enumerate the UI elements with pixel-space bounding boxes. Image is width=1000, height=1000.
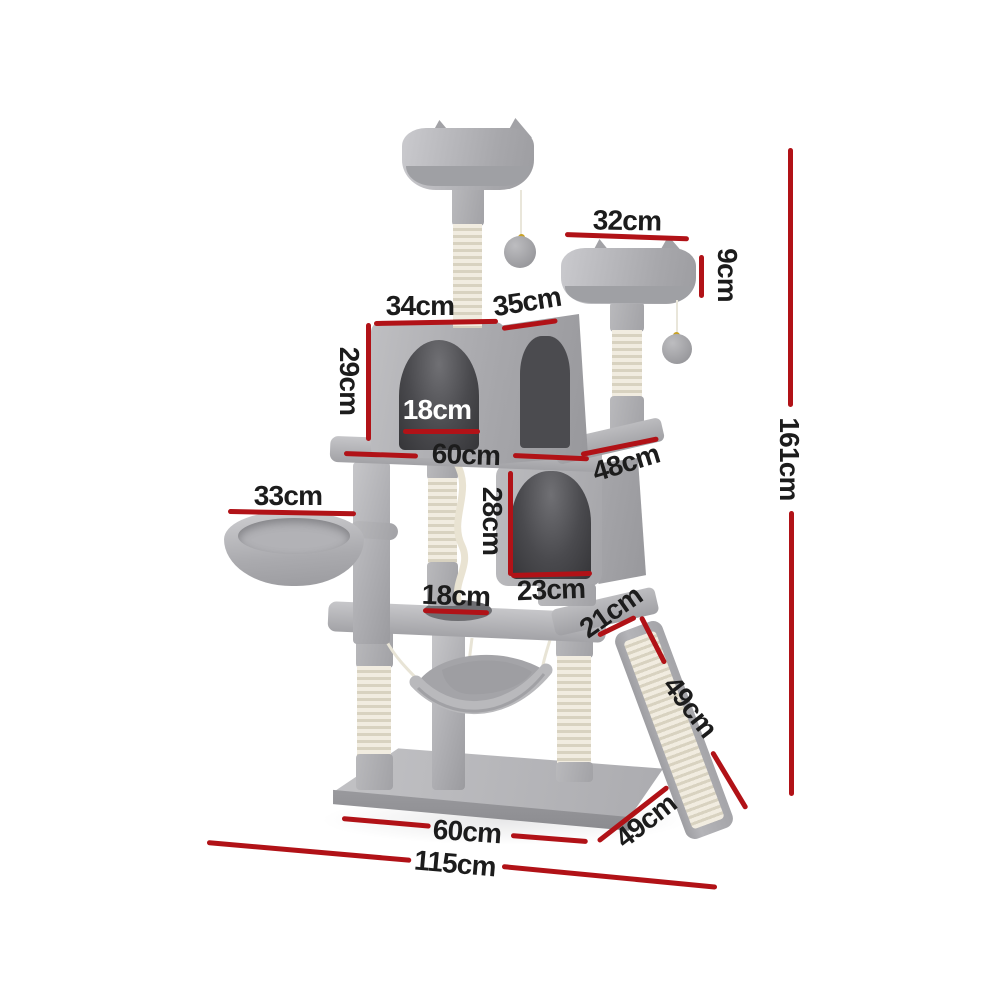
dim-label: 60cm xyxy=(431,440,500,470)
dim-label: 32cm xyxy=(593,206,662,235)
side-perch-rim xyxy=(565,286,692,303)
dim-label: 60cm xyxy=(432,816,502,849)
dim-line xyxy=(788,148,793,407)
hanging-ball-toy-2 xyxy=(662,334,692,364)
dim-label: 9cm xyxy=(713,248,741,302)
dim-label: 23cm xyxy=(516,575,585,605)
dim-label: 28cm xyxy=(478,487,506,555)
lower-right-post-bottom xyxy=(556,762,593,782)
hammock xyxy=(372,630,572,730)
dim-label: 33cm xyxy=(254,482,322,510)
dim-line xyxy=(789,511,794,796)
dim-label: 29cm xyxy=(335,347,363,415)
dim-line xyxy=(403,429,480,434)
dim-line xyxy=(699,255,704,298)
lower-condo-entrance xyxy=(511,471,591,579)
toy-string xyxy=(520,190,522,238)
dim-label: 18cm xyxy=(403,396,471,424)
hanging-ball-toy xyxy=(504,236,536,268)
dim-label: 161cm xyxy=(775,417,803,500)
dim-line xyxy=(366,323,371,441)
top-scratching-post xyxy=(453,224,482,328)
dim-label: 18cm xyxy=(421,581,490,611)
dim-label: 34cm xyxy=(386,292,454,320)
dim-label: 35cm xyxy=(491,283,563,321)
side-perch-post-top xyxy=(610,302,644,332)
basket-inner xyxy=(238,518,350,554)
product-dimension-diagram: 32cm 9cm 34cm 35cm 29cm 18cm 60cm xyxy=(0,0,1000,1000)
dim-label: 115cm xyxy=(413,846,497,881)
top-post-upper xyxy=(452,186,484,226)
lower-left-post-bottom xyxy=(356,754,393,790)
top-perch-rim xyxy=(406,166,530,186)
dim-line xyxy=(502,864,717,890)
dim-line xyxy=(508,471,513,576)
upper-condo-side-window xyxy=(520,336,570,448)
side-perch-scratching-post xyxy=(612,330,642,398)
